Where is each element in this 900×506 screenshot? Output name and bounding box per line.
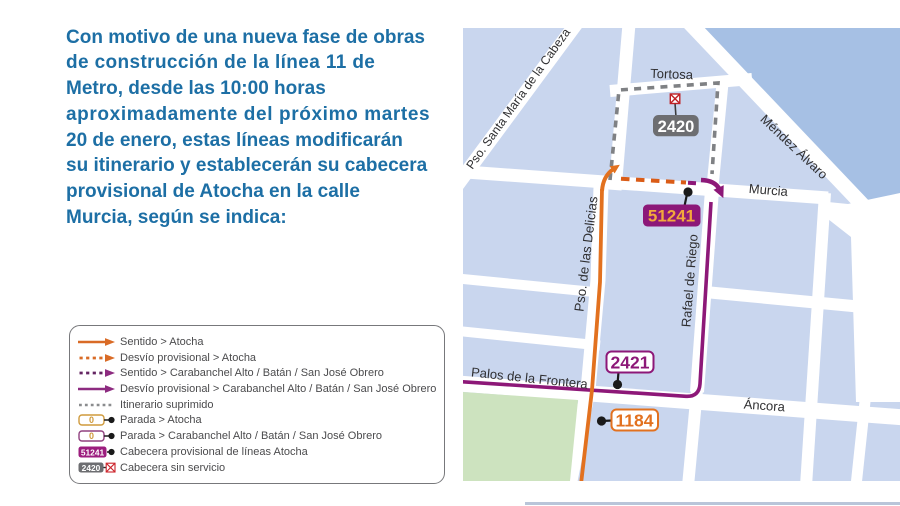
- svg-text:2420: 2420: [658, 118, 695, 136]
- svg-text:Tortosa: Tortosa: [650, 66, 694, 83]
- svg-text:2421: 2421: [611, 353, 650, 373]
- svg-text:Áncora: Áncora: [743, 397, 786, 415]
- svg-text:51241: 51241: [648, 207, 695, 226]
- svg-text:1184: 1184: [616, 411, 654, 431]
